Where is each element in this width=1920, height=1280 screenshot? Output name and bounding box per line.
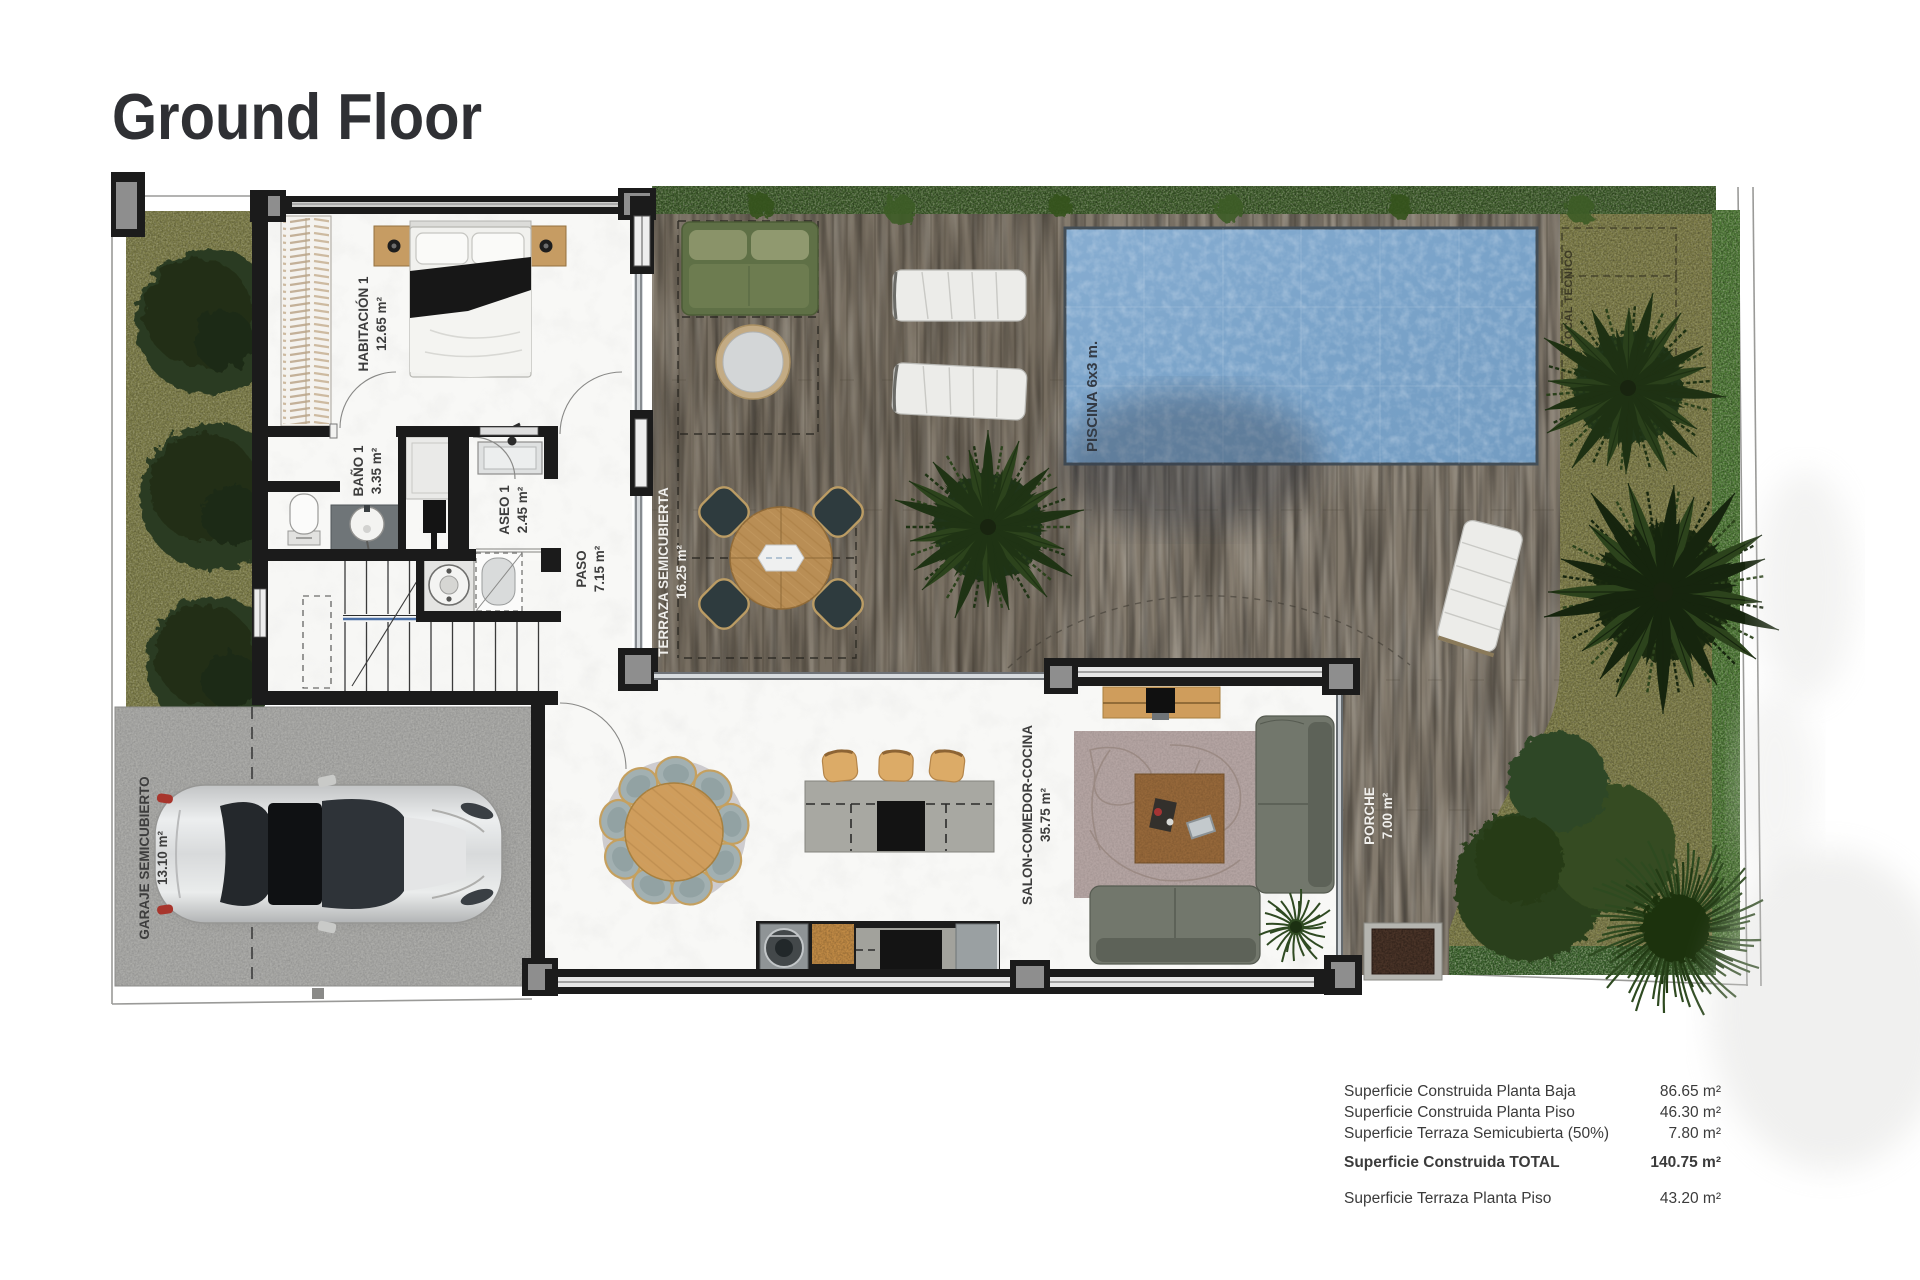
svg-text:3.35 m²: 3.35 m² [369,447,384,494]
svg-text:Superficie Terraza Semicubiert: Superficie Terraza Semicubierta (50%) [1344,1125,1609,1142]
svg-text:Superficie Construida TOTAL: Superficie Construida TOTAL [1344,1154,1560,1171]
svg-text:2.45 m²: 2.45 m² [515,486,530,533]
svg-text:35.75 m²: 35.75 m² [1038,787,1053,842]
svg-text:HABITACIÓN 1: HABITACIÓN 1 [356,276,371,371]
svg-text:7.80 m²: 7.80 m² [1668,1125,1721,1142]
svg-text:BAÑO 1: BAÑO 1 [351,445,366,496]
svg-text:Ground Floor: Ground Floor [112,80,482,153]
svg-text:Superficie Construida Planta B: Superficie Construida Planta Baja [1344,1083,1576,1100]
svg-text:PORCHE: PORCHE [1362,787,1377,845]
svg-text:7.15 m²: 7.15 m² [592,545,607,592]
svg-text:PISCINA 6x3 m.: PISCINA 6x3 m. [1084,341,1101,452]
svg-text:140.75 m²: 140.75 m² [1650,1154,1721,1171]
svg-text:Superficie Construida Planta P: Superficie Construida Planta Piso [1344,1104,1575,1121]
svg-text:ASEO 1: ASEO 1 [497,485,512,535]
svg-text:PASO: PASO [574,550,589,587]
svg-text:86.65 m²: 86.65 m² [1660,1083,1721,1100]
svg-text:13.10 m²: 13.10 m² [155,830,170,885]
svg-text:TERRAZA SEMICUBIERTA: TERRAZA SEMICUBIERTA [656,487,671,657]
svg-text:Superficie Terraza Planta Piso: Superficie Terraza Planta Piso [1344,1190,1551,1207]
svg-text:SALON-COMEDOR-COCINA: SALON-COMEDOR-COCINA [1020,725,1035,905]
svg-text:12.65 m²: 12.65 m² [374,296,389,351]
svg-text:43.20 m²: 43.20 m² [1660,1190,1721,1207]
svg-text:7.00 m²: 7.00 m² [1380,792,1395,839]
svg-text:16.25 m²: 16.25 m² [674,544,689,599]
svg-text:46.30 m²: 46.30 m² [1660,1104,1721,1121]
svg-text:GARAJE SEMICUBIERTO: GARAJE SEMICUBIERTO [137,776,152,939]
